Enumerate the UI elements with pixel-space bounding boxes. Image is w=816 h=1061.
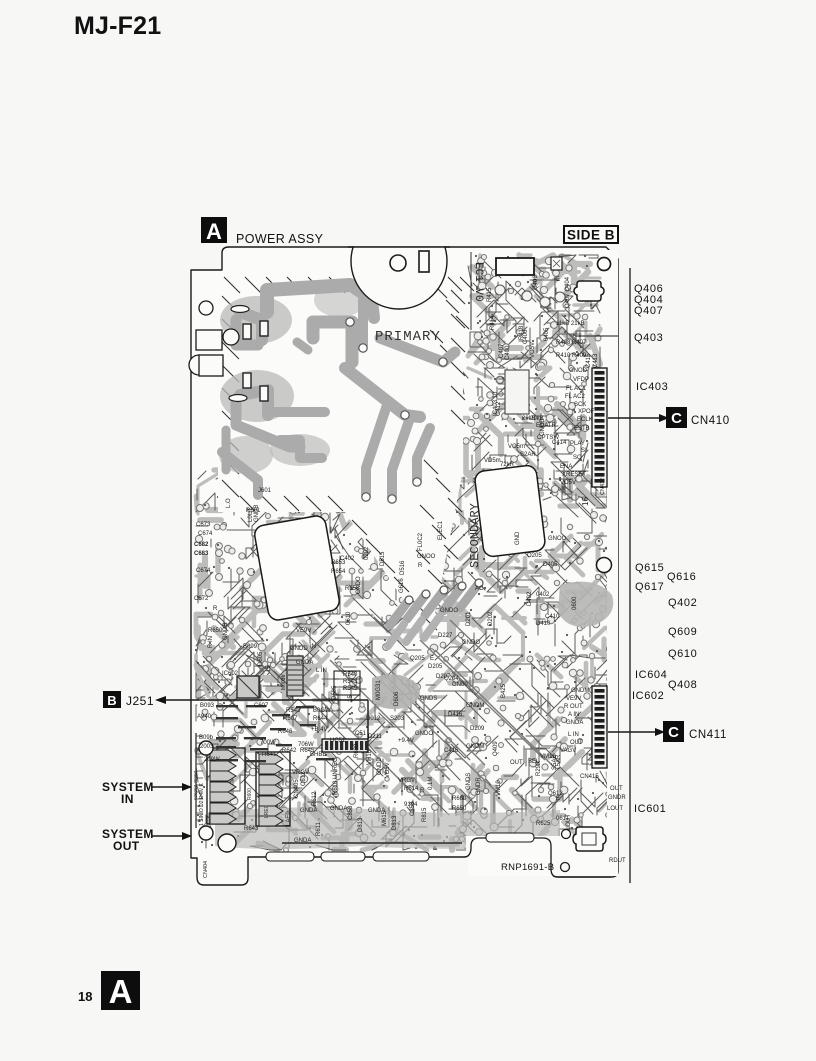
svg-text:SEL: SEL	[528, 759, 540, 765]
svg-text:GNDA: GNDA	[294, 838, 311, 844]
svg-text:GNDO: GNDO	[462, 640, 480, 646]
svg-text:B093: B093	[200, 703, 215, 709]
svg-text:VE9V: VE9V	[296, 628, 311, 634]
svg-text:R612: R612	[312, 791, 318, 806]
svg-text:C51: C51	[355, 731, 367, 737]
svg-text:R OUT: R OUT	[564, 704, 583, 710]
svg-text:CN411: CN411	[689, 729, 727, 741]
svg-text:GNDM: GNDM	[466, 744, 484, 750]
svg-text:R660: R660	[452, 796, 467, 802]
svg-text:R600: R600	[247, 788, 253, 800]
svg-text:Q409: Q409	[493, 741, 499, 756]
svg-text:PRIMARY: PRIMARY	[375, 329, 441, 345]
svg-text:D201: D201	[466, 611, 472, 626]
svg-text:VH10: VH10	[367, 749, 373, 765]
svg-text:O205: O205	[527, 553, 542, 559]
svg-text:VRGV: VRGV	[398, 778, 415, 784]
svg-text:GNDM: GNDM	[466, 703, 484, 709]
svg-text:D515: D515	[380, 551, 386, 566]
svg-text:0610: 0610	[346, 611, 352, 625]
svg-text:IN: IN	[121, 792, 134, 806]
svg-text:C413: C413	[593, 353, 599, 368]
svg-text:C858: C858	[410, 801, 416, 816]
svg-text:Q617: Q617	[635, 581, 664, 593]
svg-text:R414: R414	[490, 315, 496, 330]
svg-text:FL AC2: FL AC2	[565, 394, 585, 400]
svg-text:VO5m: VO5m	[508, 444, 525, 450]
svg-text:D606: D606	[394, 691, 400, 706]
svg-text:B09b: B09b	[199, 735, 214, 741]
svg-text:XRESET: XRESET	[562, 472, 586, 478]
svg-text:Q407: Q407	[634, 305, 663, 317]
svg-text:VO5V: VO5V	[530, 342, 536, 358]
svg-text:GNDS: GNDS	[466, 773, 472, 790]
svg-text:S2AR: S2AR	[520, 452, 536, 458]
svg-text:M0031: M0031	[281, 674, 287, 690]
svg-text:ESTB: ESTB	[574, 426, 590, 432]
svg-text:D227: D227	[438, 633, 453, 639]
svg-text:B425: B425	[501, 683, 507, 698]
svg-text:GNOD: GNOD	[569, 368, 588, 374]
svg-text:C400: C400	[505, 345, 511, 360]
svg-text:IC403 10: IC403 10	[493, 391, 499, 416]
svg-text:CN410: CN410	[691, 415, 730, 427]
svg-text:R614: R614	[404, 786, 419, 792]
svg-text:A940: A940	[197, 714, 212, 720]
svg-text:A: A	[109, 973, 133, 1010]
svg-text:D813: D813	[358, 817, 364, 832]
svg-text:D402: D402	[527, 591, 533, 606]
svg-text:GNDB: GNDB	[254, 505, 260, 522]
svg-text:R543: R543	[343, 679, 358, 685]
svg-text:IC601: IC601	[634, 803, 666, 815]
svg-text:LOUT: LOUT	[566, 814, 572, 830]
svg-text:R650: R650	[208, 628, 223, 634]
svg-text:E: E	[556, 796, 560, 802]
svg-text:C612: C612	[301, 771, 307, 786]
svg-text:ECLK: ECLK	[577, 417, 593, 423]
svg-text:E: E	[533, 280, 537, 286]
svg-text:LOUT: LOUT	[607, 806, 623, 812]
svg-text:D205: D205	[428, 664, 443, 670]
svg-text:IN: IN	[310, 644, 316, 650]
svg-text:0600: 0600	[572, 596, 578, 610]
svg-text:IC602: IC602	[632, 690, 664, 702]
svg-text:SO: SO	[573, 455, 582, 461]
svg-text:B: B	[107, 693, 116, 708]
svg-text:R: R	[418, 563, 423, 569]
svg-text:GNDA: GNDA	[566, 720, 583, 726]
svg-text:B0GW: B0GW	[313, 708, 331, 714]
svg-text:GNDR: GNDR	[476, 777, 482, 795]
svg-text:XPOF: XPOF	[578, 409, 595, 415]
svg-text:C: C	[671, 410, 682, 427]
svg-text:R642: R642	[282, 748, 297, 754]
svg-text:PLAY: PLAY	[570, 441, 585, 447]
svg-text:VE9V: VE9V	[566, 696, 581, 702]
svg-text:L IN: L IN	[568, 732, 579, 738]
svg-text:GNDS: GNDS	[420, 696, 437, 702]
svg-text:Q408: Q408	[668, 679, 697, 691]
svg-text:R641: R641	[262, 752, 277, 758]
svg-text:+B.4V: +B.4V	[311, 727, 328, 733]
svg-text:D207: D207	[436, 674, 451, 680]
svg-text:J251: J251	[126, 694, 154, 708]
svg-text:R410 R409: R410 R409	[556, 353, 587, 359]
svg-text:R815: R815	[422, 807, 428, 822]
svg-text:0402: 0402	[536, 592, 550, 598]
svg-text:CN405: CN405	[294, 779, 300, 798]
svg-text:RNP1691-B: RNP1691-B	[501, 862, 554, 873]
svg-text:J601: J601	[258, 488, 272, 494]
svg-text:ELEC1: ELEC1	[438, 520, 444, 540]
svg-text:R638: R638	[354, 743, 360, 758]
svg-text:R646: R646	[278, 729, 293, 735]
svg-text:Q403: Q403	[634, 332, 663, 344]
svg-text:R650: R650	[452, 806, 467, 812]
svg-text:VD5V: VD5V	[385, 762, 391, 778]
svg-text:GNDO: GNDO	[440, 608, 458, 614]
svg-text:GNDM: GNDM	[571, 688, 589, 694]
svg-text:IC403: IC403	[636, 381, 668, 393]
svg-text:LRE0: LRE0	[264, 805, 270, 818]
svg-text:C402: C402	[340, 556, 355, 562]
svg-text:L.O: L.O	[226, 498, 232, 508]
svg-text:D211: D211	[368, 734, 383, 740]
svg-text:C673: C673	[196, 522, 211, 528]
svg-text:OUT: OUT	[113, 839, 140, 853]
svg-text:Q205: Q205	[410, 656, 425, 662]
svg-text:S5AR: S5AR	[552, 754, 558, 770]
svg-text:GND: GND	[515, 531, 521, 545]
svg-text:D416: D416	[448, 712, 463, 718]
svg-text:D209: D209	[470, 726, 485, 732]
svg-text:OUT: OUT	[570, 740, 583, 746]
svg-text:E: E	[556, 277, 560, 283]
svg-text:OUT: OUT	[510, 760, 523, 766]
svg-text:VAGV: VAGV	[560, 748, 576, 754]
svg-text:700W: 700W	[260, 740, 276, 746]
svg-text:E: E	[430, 656, 434, 662]
svg-text:72kR: 72kR	[500, 462, 515, 468]
svg-text:18: 18	[78, 989, 92, 1004]
svg-text:G616: G616	[399, 578, 405, 593]
svg-text:R507: R507	[283, 716, 298, 722]
svg-text:L IN: L IN	[316, 668, 327, 674]
svg-text:D410: D410	[536, 621, 551, 627]
svg-text:MJ-F21: MJ-F21	[74, 12, 161, 40]
svg-text:B099: B099	[243, 644, 258, 650]
svg-text:VM10: VM10	[496, 780, 502, 796]
svg-text:D605: D605	[258, 651, 264, 666]
svg-text:R408 R407: R408 R407	[556, 340, 587, 346]
svg-text:C674: C674	[198, 531, 213, 537]
svg-text:R654: R654	[331, 569, 346, 575]
svg-text:S203: S203	[390, 716, 405, 722]
svg-text:CN404: CN404	[203, 861, 209, 878]
svg-text:LAE0: LAE0	[286, 811, 292, 826]
svg-text:Q402: Q402	[668, 597, 697, 609]
svg-text:R611: R611	[316, 821, 322, 836]
svg-text:GNDA: GNDA	[300, 808, 317, 814]
svg-text:C416: C416	[444, 748, 459, 754]
svg-text:209W: 209W	[204, 757, 220, 763]
svg-text:VO5V: VO5V	[560, 480, 576, 486]
svg-text:Q609: Q609	[668, 626, 697, 638]
svg-text:R540: R540	[343, 672, 358, 678]
svg-text:GNDA: GNDA	[330, 806, 347, 812]
svg-text:0202: 0202	[364, 546, 370, 560]
svg-text:GNDD: GNDD	[377, 757, 383, 775]
svg-text:CNDO: CNDO	[356, 576, 362, 594]
svg-text:R: R	[213, 606, 218, 612]
svg-text:Q615: Q615	[635, 562, 664, 574]
svg-text:SIDE B: SIDE B	[567, 228, 615, 243]
svg-text:15: 15	[266, 665, 272, 672]
svg-text:+9.4V: +9.4V	[398, 738, 414, 744]
svg-text:UC51: UC51	[330, 738, 346, 744]
svg-text:GNDD: GNDD	[540, 418, 546, 436]
svg-text:IC602: IC602	[222, 671, 239, 677]
svg-text:AC: AC	[475, 586, 484, 592]
svg-text:C406: C406	[523, 329, 529, 344]
svg-text:ENA: ENA	[560, 464, 572, 470]
svg-text:C410: C410	[545, 614, 560, 620]
svg-text:R IN: R IN	[208, 636, 214, 648]
svg-text:EC1 V0: EC1 V0	[472, 262, 484, 302]
svg-text:GN00: GN00	[452, 682, 468, 688]
svg-text:Q610: Q610	[668, 648, 697, 660]
svg-text:2003: 2003	[200, 744, 214, 750]
svg-text:VFDP: VFDP	[573, 377, 589, 383]
svg-text:C: C	[668, 724, 679, 741]
svg-text:R415: R415	[487, 287, 493, 302]
svg-text:R645: R645	[300, 748, 315, 754]
svg-text:D202: D202	[488, 611, 494, 626]
svg-text:GNOO: GNOO	[548, 536, 567, 542]
svg-text:R610 UNREG: R610 UNREG	[333, 757, 339, 795]
svg-text:Q616: Q616	[667, 571, 696, 583]
svg-text:C682: C682	[194, 542, 209, 548]
svg-text:0.1M: 0.1M	[428, 777, 434, 790]
svg-text:A IN: A IN	[568, 712, 579, 718]
svg-text:C414: C414	[552, 440, 567, 446]
svg-text:IC604: IC604	[635, 669, 667, 681]
svg-text:SI: SI	[581, 448, 587, 454]
svg-text:C415: C415	[586, 353, 592, 368]
svg-text:Q407 Q404: Q407 Q404	[565, 276, 571, 308]
svg-text:R: R	[420, 788, 425, 794]
svg-text:C674: C674	[196, 568, 211, 574]
svg-text:GNDA: GNDA	[296, 660, 313, 666]
svg-text:POWER ASSY: POWER ASSY	[236, 232, 324, 246]
svg-text:15: 15	[348, 695, 354, 702]
svg-text:16: 16	[581, 497, 590, 506]
svg-text:C607: C607	[254, 703, 269, 709]
svg-text:GNDR: GNDR	[608, 795, 626, 801]
svg-text:M615: M615	[382, 810, 388, 826]
svg-text:FL AC1: FL AC1	[566, 386, 586, 392]
svg-text:C858: C858	[348, 805, 354, 820]
svg-text:FL0C2: FL0C2	[418, 532, 424, 551]
svg-text:GNOO: GNOO	[417, 554, 436, 560]
svg-text:SCK: SCK	[574, 402, 586, 408]
svg-text:C672: C672	[194, 596, 209, 602]
svg-text:GNDO: GNDO	[415, 731, 433, 737]
svg-text:C683: C683	[194, 551, 209, 557]
svg-text:M0G31: M0G31	[376, 680, 382, 700]
svg-text:D813: D813	[392, 815, 398, 830]
svg-text:R643: R643	[244, 826, 259, 832]
svg-text:D516: D516	[400, 560, 406, 575]
svg-text:D405: D405	[543, 562, 558, 568]
svg-text:VD5m: VD5m	[484, 458, 501, 464]
svg-text:A: A	[206, 219, 222, 244]
svg-text:11kB 21kB: 11kB 21kB	[556, 321, 585, 327]
svg-text:CN412: CN412	[600, 478, 606, 495]
svg-text:0405: 0405	[544, 327, 550, 341]
svg-text:R644: R644	[313, 716, 328, 722]
svg-text:GNDD: GNDD	[290, 646, 308, 652]
svg-text:CN415: CN415	[580, 774, 599, 780]
svg-text:1 SIN O D2 D4 V K: 1 SIN O D2 D4 V K	[199, 783, 205, 826]
svg-text:OUT: OUT	[610, 786, 623, 792]
svg-text:R625: R625	[536, 821, 551, 827]
svg-text:R543: R543	[286, 708, 301, 714]
svg-text:GNDR: GNDR	[223, 622, 229, 640]
svg-text:RDUT: RDUT	[609, 858, 626, 864]
